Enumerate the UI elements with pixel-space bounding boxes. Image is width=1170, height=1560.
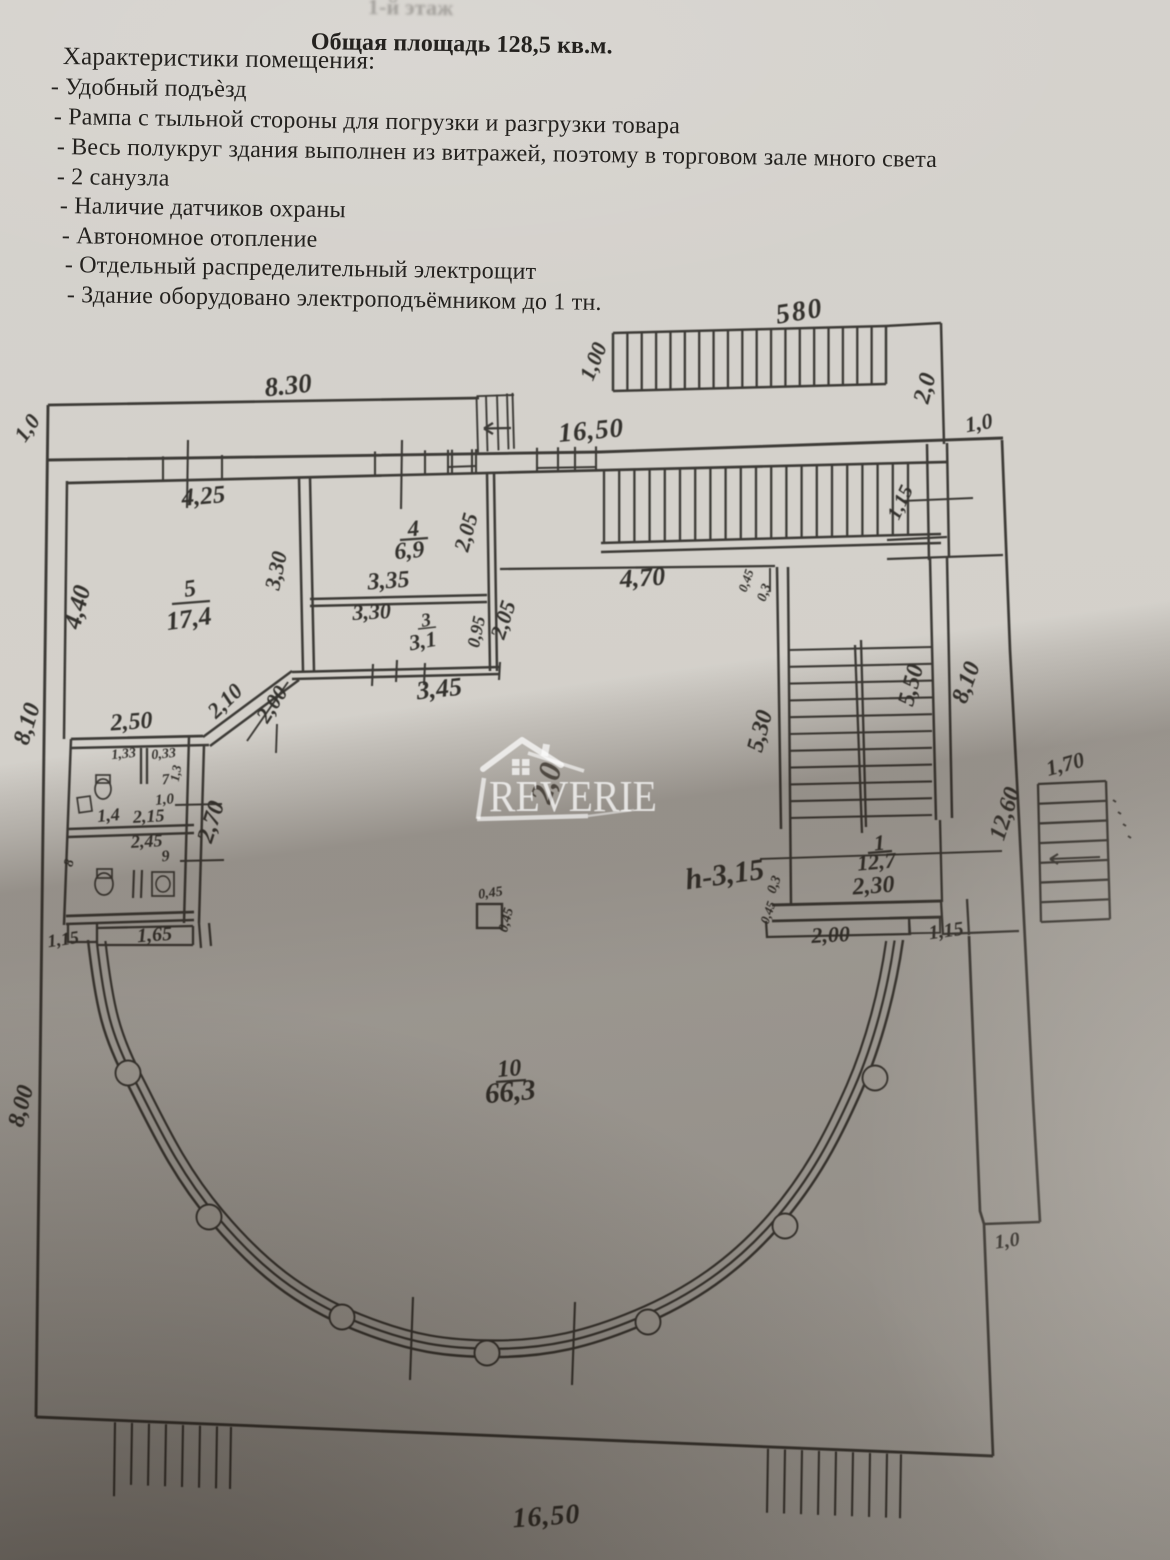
svg-text:REVERIE: REVERIE [489, 772, 657, 821]
